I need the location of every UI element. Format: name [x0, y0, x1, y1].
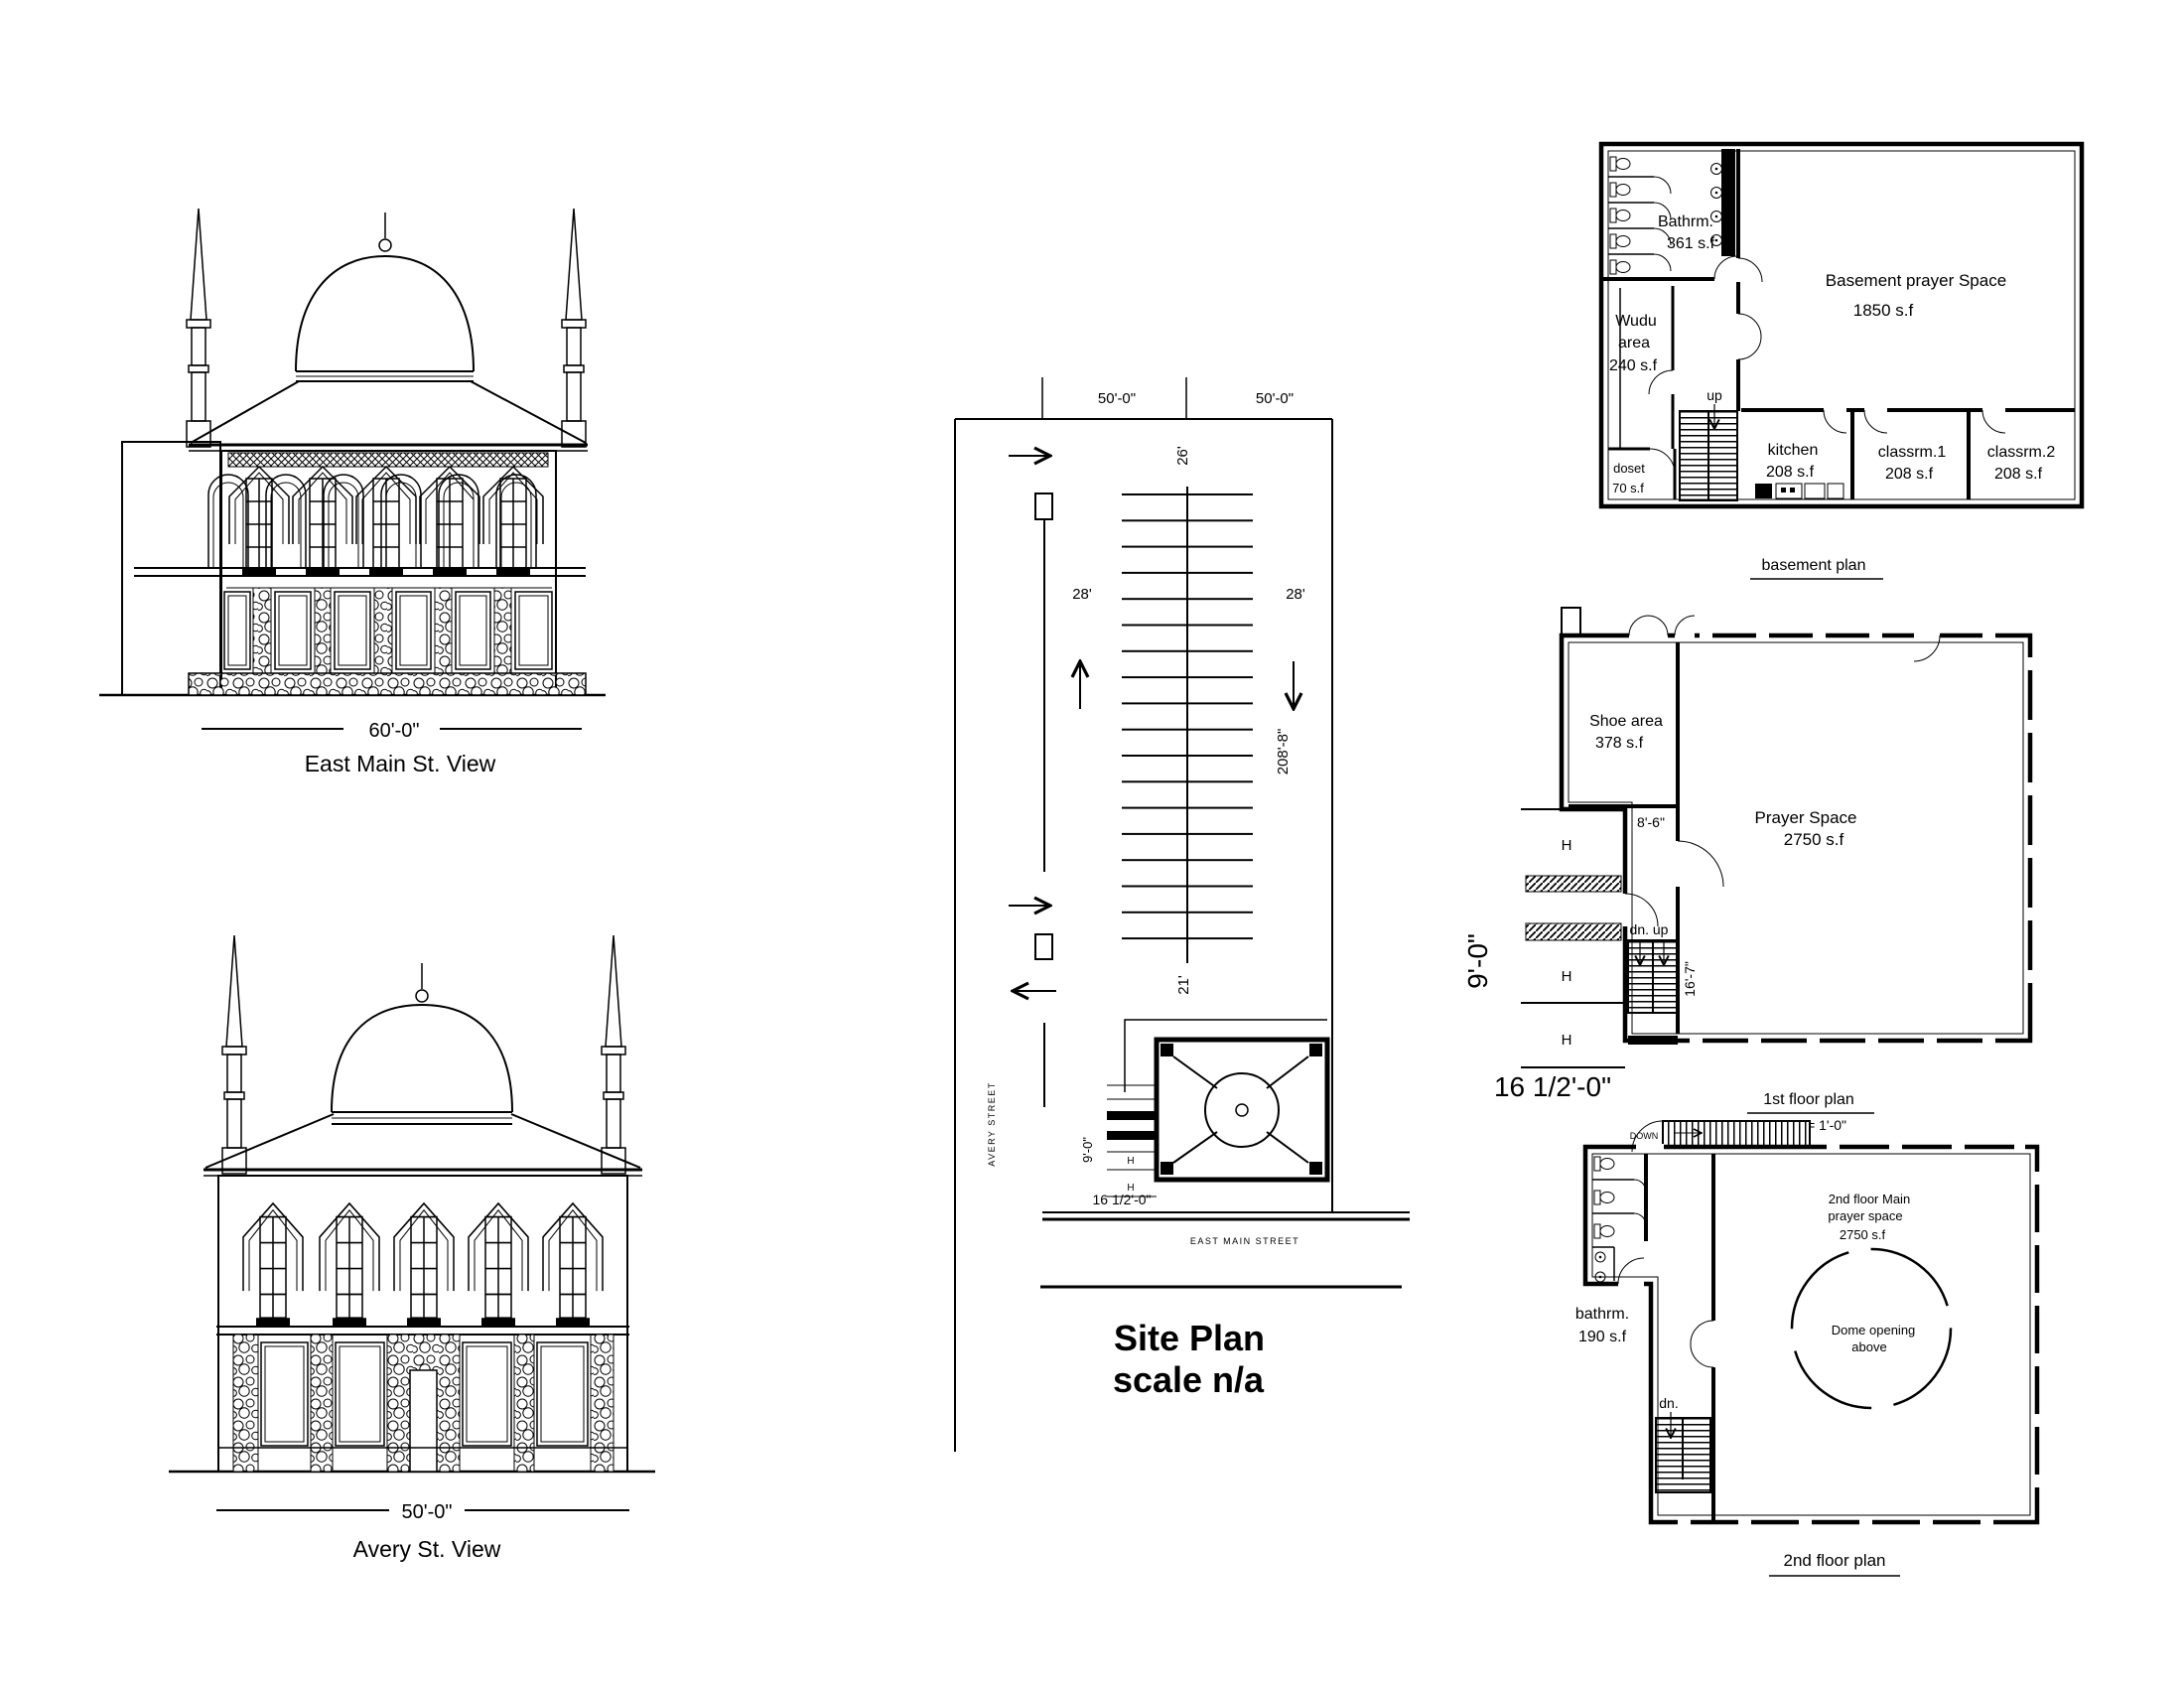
toilet-icon [1610, 260, 1630, 274]
room-area: 70 s.f [1612, 481, 1644, 495]
toilet-icon [1594, 1157, 1614, 1171]
view-label: East Main St. View [305, 751, 496, 776]
access-aisle [1526, 876, 1621, 892]
elevation-avery: 50'-0" Avery St. View [169, 935, 655, 1562]
room-area: 2750 s.f [1840, 1227, 1886, 1242]
stone-base-course [189, 673, 586, 695]
sink-icon [1711, 164, 1722, 246]
door-arc [1714, 256, 1737, 279]
floor-band [216, 1327, 629, 1335]
sign-marker [1035, 493, 1052, 519]
sheet-svg: 60'-0" East Main St. View [0, 0, 2184, 1688]
view-label: Avery St. View [353, 1536, 501, 1562]
door-arc [1738, 258, 1762, 282]
street-label-west: AVERY STREET [987, 1081, 997, 1167]
sign-marker [1035, 934, 1052, 959]
room-area: 1850 s.f [1853, 301, 1914, 320]
room-label: Prayer Space [1755, 808, 1857, 827]
site-plan-title: Site Plan scale n/a [1040, 1287, 1402, 1400]
wudu-area: Wudu area 240 s.f [1609, 286, 1673, 449]
top-dimensions: 50'-0" 50'-0" [1042, 377, 1294, 419]
dimension-50: 50'-0" [216, 1501, 629, 1523]
room-label: Bathrm. [1658, 213, 1713, 230]
dim-50-left: 50'-0" [1098, 390, 1136, 407]
room-label: Wudu [1615, 313, 1657, 330]
double-door-arc [1691, 1321, 1713, 1343]
dim-entry-depth: 9'-0" [1462, 933, 1493, 989]
dim-depth: 208'-8" [1275, 729, 1292, 775]
site-plan: 50'-0" 50'-0" 26' 28' 28' 208'-8" 21' [955, 377, 1410, 1452]
door-arc [1864, 410, 1887, 433]
dim-entry-width: 16 1/2'-0" [1092, 1192, 1151, 1207]
toilet-icon [1610, 209, 1630, 222]
minaret-left [222, 935, 246, 1174]
room-area: 190 s.f [1578, 1329, 1627, 1345]
dome [332, 1005, 512, 1112]
dome-note: above [1851, 1339, 1886, 1354]
dim-50-right: 50'-0" [1256, 390, 1294, 407]
handicap-mark: H [1127, 1156, 1134, 1167]
entry-threshold [1628, 1036, 1678, 1045]
title-text: 1st floor plan [1763, 1091, 1854, 1108]
elevation-east-main: 60'-0" East Main St. View [99, 209, 606, 776]
entry-steps: H H [1107, 1085, 1157, 1196]
handicap-mark: H [1562, 968, 1572, 985]
room-label: bathrm. [1575, 1306, 1629, 1323]
room-label: Basement prayer Space [1826, 271, 2006, 290]
toilet-icon [1594, 1191, 1614, 1204]
dim-entry-width: 16 1/2'-0" [1494, 1071, 1611, 1102]
roof-and-dome [204, 963, 642, 1176]
sink-wall [1721, 149, 1735, 256]
second-floor-plan: DOWN bathrm. [1575, 1121, 2037, 1576]
basement-plan: Bathrm. 361 s.f Wudu area 240 s.f doset … [1601, 144, 2082, 579]
door-arc [1650, 449, 1675, 474]
door-arc [1824, 410, 1846, 433]
toilet-icon [1610, 234, 1630, 248]
main-entry-doors [1629, 616, 1695, 635]
room-label: 2nd floor Main [1829, 1192, 1910, 1206]
room-area: 240 s.f [1609, 357, 1658, 374]
dome-finial [1236, 1104, 1248, 1116]
room-area: 208 s.f [1766, 464, 1815, 481]
parking-rows [1122, 487, 1253, 963]
second-floor-title: 2nd floor plan [1769, 1551, 1900, 1576]
dim-stall-right: 28' [1286, 586, 1305, 603]
street-edges [1042, 1212, 1410, 1219]
access-aisle [1526, 923, 1621, 940]
room-label: doset [1613, 461, 1645, 476]
title-text: basement plan [1762, 557, 1866, 574]
closet: doset 70 s.f [1608, 449, 1675, 499]
finial-crescent [379, 239, 391, 251]
scale-text: scale n/a [1113, 1359, 1265, 1400]
northeast-door [1914, 635, 1940, 661]
kitchen-counter [1755, 484, 1843, 498]
toilet-icon [1594, 1224, 1614, 1238]
exterior-wall [1585, 1147, 2037, 1522]
dimension-60: 60'-0" [202, 720, 582, 742]
dome [296, 256, 474, 371]
dim-drive: 21' [1175, 975, 1192, 995]
first-floor-plan: Shoe area 378 s.f 8'-6" Prayer Space 275… [1462, 608, 2030, 1133]
room-area: 208 s.f [1885, 466, 1934, 483]
dim-stall-left: 28' [1072, 586, 1092, 603]
dim-stair: 16'-7" [1682, 961, 1698, 997]
dimension-text: 50'-0" [402, 1501, 453, 1523]
south-rooms: kitchen 208 s.f classrm.1 208 s.f classr… [1741, 410, 2075, 499]
dome-outline [1205, 1073, 1279, 1147]
room-label: Shoe area [1589, 713, 1663, 730]
toilet-icon [1610, 183, 1630, 197]
basement-title: basement plan [1750, 557, 1883, 579]
door-arc [1618, 1258, 1644, 1284]
bathroom: Bathrm. 361 s.f [1601, 149, 1737, 279]
entry-door [410, 1370, 437, 1472]
interior-stair: dn. [1656, 1395, 1710, 1492]
room-label: kitchen [1768, 442, 1819, 459]
handicap-mark: H [1562, 1032, 1572, 1049]
window-gaps [1690, 635, 2030, 1041]
street-label-south: EAST MAIN STREET [1190, 1236, 1299, 1246]
room-area: 2750 s.f [1784, 830, 1844, 849]
room-label: classrm.2 [1987, 444, 2056, 461]
dimension-text: 60'-0" [369, 720, 420, 742]
wall-jog [1562, 608, 1580, 635]
double-door-arc [1691, 1343, 1713, 1367]
stone-piers [253, 588, 511, 673]
first-floor-stair: dn. up 16'-7" [1628, 921, 1698, 1013]
room-area: 208 s.f [1994, 466, 2043, 483]
minaret-right [562, 209, 586, 447]
stair-label: up [1706, 387, 1722, 403]
pointed-windows [243, 1203, 603, 1326]
room-area: 361 s.f [1667, 235, 1715, 252]
finial-crescent [416, 990, 428, 1002]
dim-aisle: 26' [1174, 446, 1191, 466]
room-area: 378 s.f [1595, 735, 1644, 752]
dim-hall: 8'-6" [1637, 814, 1665, 830]
drawing-sheet: 60'-0" East Main St. View [0, 0, 2184, 1688]
room-label: prayer space [1828, 1208, 1902, 1223]
double-door-arc [1738, 337, 1761, 359]
prayer-door-arc [1678, 841, 1723, 887]
minaret-left [187, 209, 210, 447]
handicap-mark: H [1562, 837, 1572, 854]
hall-wall [1738, 149, 1762, 411]
crosshatch-band [228, 453, 548, 467]
roof-and-dome [189, 212, 588, 451]
toilet-icon [1610, 157, 1630, 171]
double-door-arc [1738, 314, 1761, 337]
title-text: Site Plan [1114, 1318, 1265, 1358]
dome-note: Dome opening [1832, 1323, 1916, 1337]
title-text: 2nd floor plan [1783, 1551, 1885, 1570]
room-label: area [1618, 335, 1650, 352]
room-label: classrm.1 [1878, 444, 1947, 461]
basement-stair: up [1680, 387, 1737, 500]
dim-entry-depth: 9'-0" [1080, 1137, 1095, 1163]
stair-label: dn. up [1630, 921, 1669, 937]
stair-label: dn. [1659, 1395, 1678, 1411]
minaret-right [602, 935, 625, 1174]
door-arc [1982, 410, 2005, 433]
stair-direction: DOWN [1630, 1131, 1659, 1141]
handicap-stalls: H H H [1521, 809, 1625, 1067]
